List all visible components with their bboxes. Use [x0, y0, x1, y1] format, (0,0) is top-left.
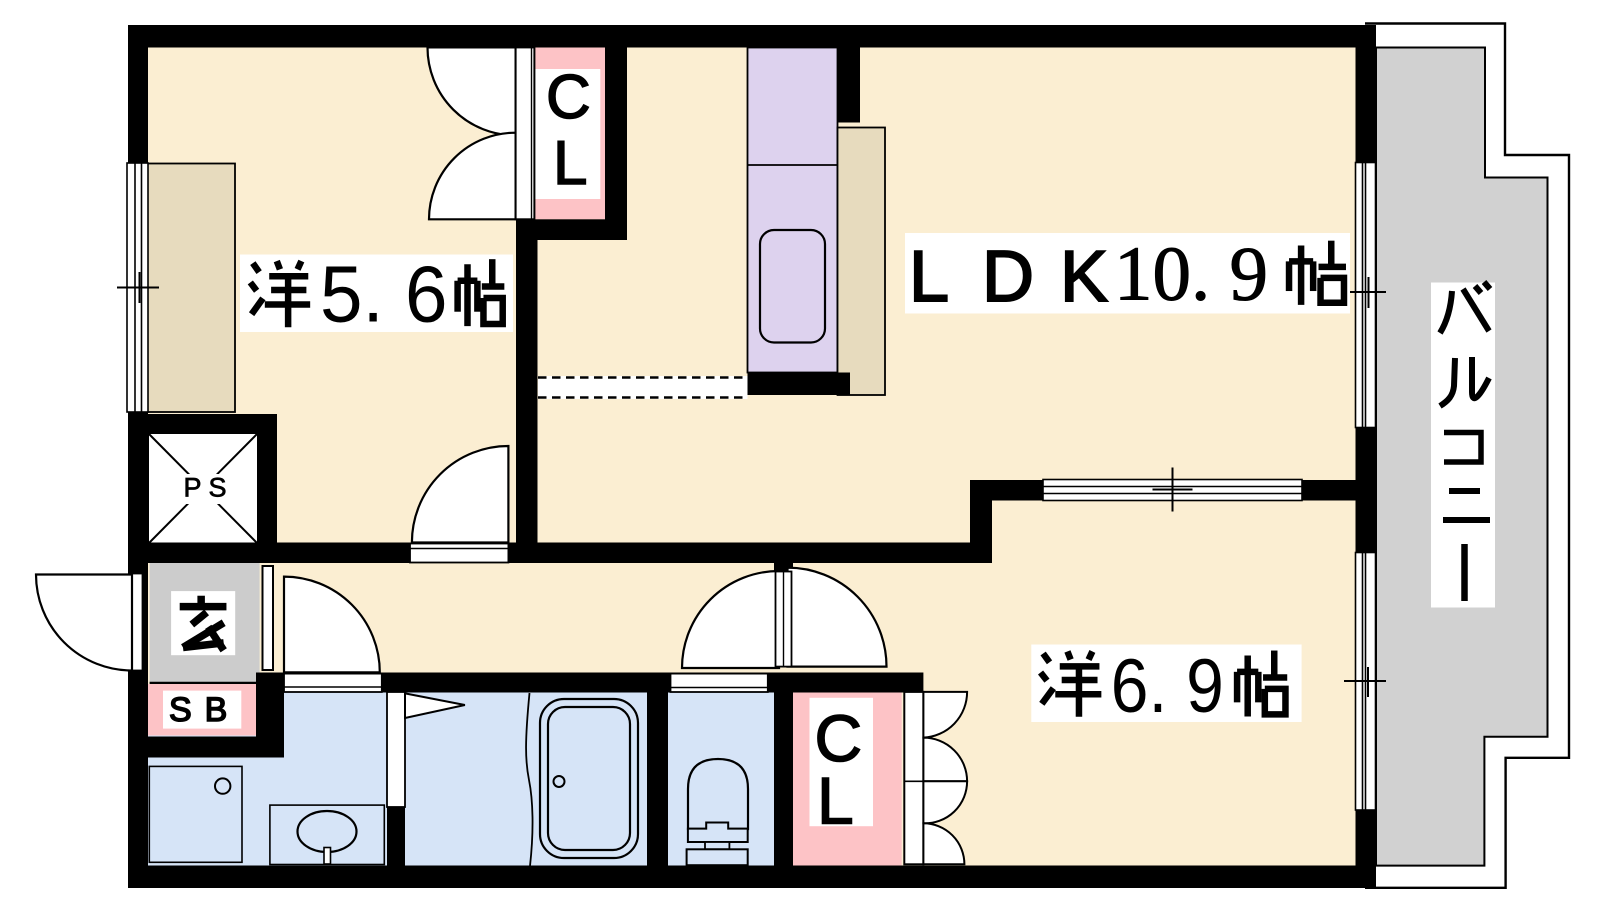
svg-text:D: D	[982, 237, 1034, 317]
svg-text:PS: PS	[184, 473, 234, 503]
svg-text:L: L	[817, 764, 854, 838]
svg-text:SB: SB	[169, 691, 240, 729]
svg-text:K: K	[1060, 237, 1108, 317]
svg-text:C: C	[546, 63, 591, 132]
svg-text:10. 9: 10. 9	[1114, 231, 1268, 317]
svg-text:L: L	[553, 129, 587, 198]
svg-text:5. 6: 5. 6	[320, 250, 448, 339]
svg-text:L: L	[909, 237, 949, 317]
svg-text:6. 9: 6. 9	[1111, 644, 1224, 729]
